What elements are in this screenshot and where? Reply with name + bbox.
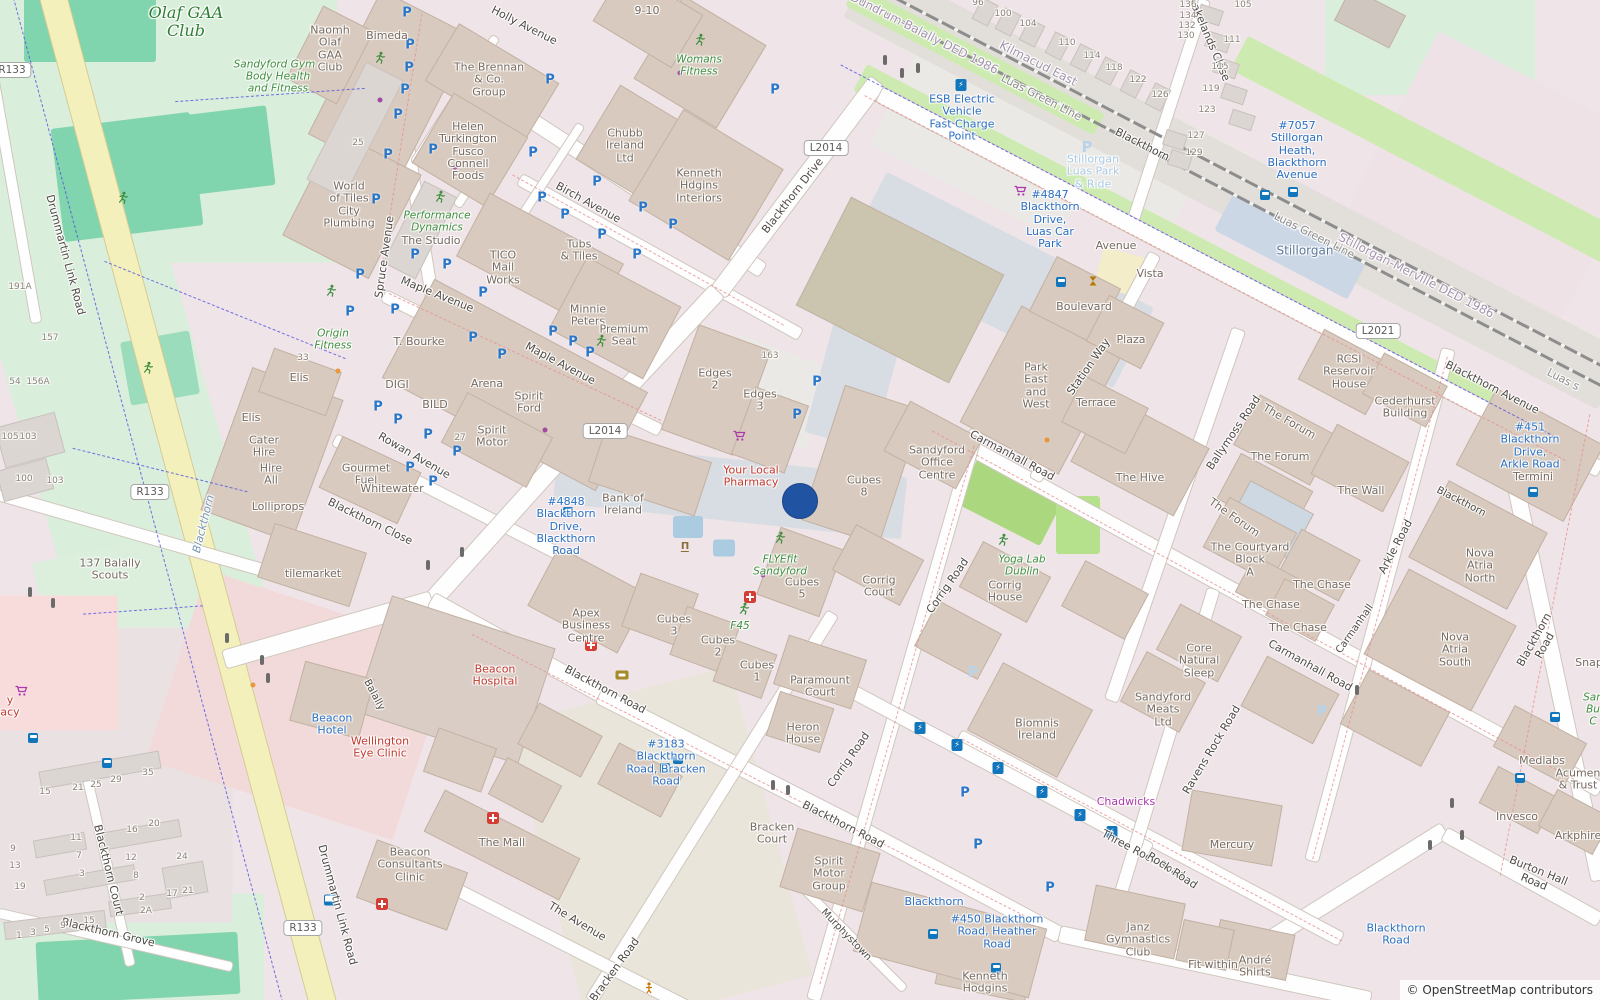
map-label: Terrace — [1076, 397, 1116, 409]
museum-icon: Π — [681, 542, 689, 552]
bus-icon — [1515, 773, 1525, 783]
p-icon: P — [545, 73, 555, 88]
map-label: #4848 Blackthorn Drive, Blackthorn Road — [536, 496, 595, 558]
p-icon: P — [528, 146, 538, 161]
map-label: Whitewater — [360, 483, 423, 495]
map-label: Fit within — [1188, 959, 1238, 971]
map-label: Arena — [471, 378, 503, 390]
map-label: Arkphire — [1555, 830, 1600, 842]
map-label: Kenneth Hdgins Interiors — [676, 168, 722, 205]
map-label: The Studio — [402, 235, 461, 247]
p-icon: P — [423, 428, 433, 443]
map-label: Chadwicks — [1097, 796, 1156, 808]
route-badge: L2014 — [583, 423, 628, 439]
map-label: Cubes 2 — [701, 635, 735, 660]
map-label: Mercury — [1210, 839, 1255, 851]
bus-icon — [102, 758, 112, 768]
bus-icon — [1056, 277, 1066, 287]
p-icon: P — [400, 83, 410, 98]
bus-icon — [1260, 190, 1270, 200]
map-label: Helen Turkington Fusco Connell Foods — [439, 121, 497, 183]
runner-icon — [739, 603, 749, 616]
p-icon: P — [497, 348, 507, 363]
map-label: 9-10 — [635, 5, 660, 17]
map-label: Corrig Court — [862, 575, 895, 600]
map-label: Cubes 3 — [657, 614, 691, 639]
map-label: Cubes 8 — [847, 475, 881, 500]
p-icon: P — [478, 286, 488, 301]
map-label: 33 — [297, 353, 308, 363]
cart-icon — [733, 431, 746, 442]
map-label: 115 — [1211, 62, 1228, 72]
map-label: The Chase — [1242, 599, 1300, 611]
map-label: 9 — [10, 844, 16, 854]
p-icon: P — [1045, 881, 1055, 896]
osm-attribution[interactable]: © OpenStreetMap contributors — [1400, 980, 1600, 1000]
runner-icon — [998, 534, 1008, 547]
map-label: Blackthorn Road — [1366, 923, 1425, 948]
map-label: 136 — [1179, 0, 1196, 10]
map-label: 105 — [1, 432, 18, 442]
map-label: Naomh Olaf GAA Club — [310, 24, 349, 73]
p-icon: P — [812, 375, 822, 390]
map-label: 105 — [1234, 0, 1251, 10]
map-label: Core Natural Sleep — [1179, 643, 1220, 680]
map-label: Your Local Pharmacy — [723, 465, 779, 490]
map-area — [713, 540, 735, 557]
runner-icon — [435, 191, 445, 204]
map-label: Stillorgan Luas Park & Ride — [1067, 154, 1120, 191]
p-icon: P — [597, 228, 607, 243]
p-icon: P — [442, 258, 452, 273]
map-label: Olaf GAA Club — [149, 4, 224, 40]
map-label: Spirit Motor Group — [812, 856, 846, 893]
location-marker[interactable] — [782, 483, 818, 519]
map-label: 12 — [125, 853, 136, 863]
map-label: 21 — [72, 783, 83, 793]
route-badge: R133 — [283, 920, 322, 936]
route-badge: L2014 — [804, 140, 849, 156]
map-label: Spirit Motor — [476, 425, 508, 450]
map-label: 103 — [19, 432, 36, 442]
p-icon: P — [592, 175, 602, 190]
tl-icon — [1355, 685, 1359, 695]
map-label: 134 — [1179, 11, 1196, 21]
map-label: Janz Gymnastics Club — [1106, 922, 1170, 959]
map-label: Origin Fitness — [314, 328, 351, 352]
map-label: World of Tiles City Plumbing — [323, 180, 374, 229]
map-label: 103 — [46, 476, 63, 486]
p-icon: P — [452, 445, 462, 460]
p-icon: P — [373, 400, 383, 415]
map-label: Edges 2 — [698, 368, 731, 393]
map-label: #7057 Stillorgan Heath, Blackthorn Avenu… — [1267, 120, 1326, 182]
tl-icon — [460, 547, 464, 557]
map-label: tilemarket — [285, 568, 341, 580]
ev-icon: ⚡ — [993, 762, 1004, 774]
map-label: 110 — [1058, 38, 1075, 48]
tl-icon — [1450, 798, 1454, 808]
map-area — [184, 105, 275, 194]
p-icon: P — [393, 108, 403, 123]
map-label: 129 — [1185, 148, 1202, 158]
ev-icon: ⚡ — [1037, 786, 1048, 798]
ev-icon: ⚡ — [1075, 809, 1086, 821]
tl-icon — [225, 633, 229, 643]
p-icon: P — [404, 61, 414, 76]
map-label: Spirit Ford — [515, 391, 544, 416]
map-label: Wellington Eye Clinic — [351, 736, 409, 761]
pp-icon: P — [968, 663, 979, 681]
map-label: The Mall — [479, 837, 525, 849]
map-label: 132 — [1178, 21, 1195, 31]
map-label: Sandyford Gym - Body Health and Fitness — [234, 59, 323, 94]
tl-icon — [900, 68, 904, 78]
map-label: Plaza — [1117, 334, 1146, 346]
map-label: 9 — [60, 921, 66, 931]
ev-icon: ⚡ — [952, 739, 963, 751]
p-icon: P — [960, 786, 970, 801]
p-icon: P — [537, 191, 547, 206]
map-label: 54 — [9, 377, 20, 387]
map-label: The Hive — [1116, 472, 1165, 484]
map-label: 123 — [1198, 105, 1215, 115]
map-label: 191A — [8, 282, 31, 292]
ev-icon: ⚡ — [956, 79, 967, 91]
map-label: 2 — [139, 893, 145, 903]
map-label: Sandyford Meats Ltd — [1135, 692, 1191, 729]
map-label: Bank of Ireland — [602, 493, 644, 518]
tl-icon — [266, 673, 270, 683]
map-label: Corrig House — [988, 580, 1022, 605]
ev-icon: ⚡ — [915, 722, 926, 734]
tl-icon — [916, 63, 920, 73]
hourglass-icon — [1089, 276, 1098, 287]
map-label: F45 — [730, 621, 749, 633]
map-label: Premium Seat — [600, 324, 649, 349]
map-label: Medlabs — [1519, 755, 1565, 767]
p-icon: P — [355, 268, 365, 283]
map-label: Yoga Lab Dublin — [998, 554, 1045, 578]
p-icon: P — [668, 218, 678, 233]
bus-icon — [28, 733, 38, 743]
map-label: San Bu C — [1583, 692, 1600, 727]
runner-icon — [375, 52, 385, 65]
map-label: 20 — [148, 819, 159, 829]
map-label: 126 — [1151, 90, 1168, 100]
map-label: 96 — [972, 0, 983, 8]
map-label: The Brennan & Co. Group — [454, 62, 524, 99]
map-label: The Forum — [1251, 451, 1310, 463]
map-label: RCSI Reservoir House — [1323, 354, 1375, 391]
map-label: 100 — [994, 9, 1011, 19]
route-badge: R133 — [0, 62, 32, 78]
map-label: Chubb Ireland Ltd — [606, 128, 644, 165]
map-label: T. Bourke — [394, 336, 445, 348]
tl-icon — [771, 780, 775, 790]
map-label: 111 — [1223, 35, 1240, 45]
map-label: Snap — [1575, 657, 1600, 669]
map-label: Cubes 5 — [785, 577, 819, 602]
cross-icon — [744, 591, 756, 603]
p-icon: P — [548, 325, 558, 340]
map-label: Cater Hire — [249, 435, 279, 460]
map-label: Elis — [242, 412, 261, 424]
runner-icon — [775, 532, 785, 545]
building — [1220, 83, 1248, 106]
map-label: Termini — [1513, 471, 1553, 483]
map-label: Heron House — [786, 722, 820, 747]
map-label: 21 — [182, 886, 193, 896]
map-label: Kenneth Hodgins — [962, 971, 1007, 996]
route-badge: L2021 — [1356, 323, 1401, 339]
map-label: Avenue — [1096, 240, 1137, 252]
tl-icon — [1428, 840, 1432, 850]
map-area — [673, 516, 703, 538]
map-label: 100 — [15, 474, 32, 484]
dot-o-icon — [251, 683, 256, 688]
p-icon: P — [345, 305, 355, 320]
map-label: Apex Business Centre — [562, 608, 611, 645]
tl-icon — [28, 587, 32, 597]
map-label: Sandyford Office Centre — [909, 445, 965, 482]
bus-icon — [928, 929, 938, 939]
map-label: The Chase — [1269, 622, 1327, 634]
bus-icon — [1288, 187, 1298, 197]
map-label: Beacon Consultants Clinic — [377, 847, 442, 884]
map-label: 5 — [44, 925, 50, 935]
map-label: 24 — [176, 852, 187, 862]
map-label: 19 — [14, 882, 25, 892]
p-icon: P — [410, 248, 420, 263]
map-label: Acumen & Trust — [1556, 768, 1600, 793]
map-label: André Shirts — [1239, 955, 1272, 980]
map-label: Beacon Hospital — [473, 664, 518, 689]
runner-icon — [118, 192, 128, 205]
map-label: Vista — [1136, 268, 1163, 280]
map-label: Cubes 1 — [740, 660, 774, 685]
map-label: Elis — [290, 372, 309, 384]
map-label: Stillorgan — [1277, 244, 1334, 257]
cross-icon — [376, 898, 388, 910]
map-label: Corrig Road — [825, 730, 872, 790]
map-label: 15 — [39, 787, 50, 797]
map-label: 3 — [30, 928, 36, 938]
map-label: Bracken Court — [750, 822, 795, 847]
map-label: 35 — [142, 768, 153, 778]
map-label: Biomnis Ireland — [1015, 718, 1059, 743]
map-label: 104 — [1019, 19, 1036, 29]
map-label: 118 — [1105, 63, 1122, 73]
tl-icon — [51, 598, 55, 608]
map-label: 1 — [16, 931, 22, 941]
map-label: y acy — [0, 695, 19, 720]
map-label: Hire All — [260, 463, 282, 488]
map-label: 15 — [83, 916, 94, 926]
p-icon: P — [585, 346, 595, 361]
bus-icon — [1528, 487, 1538, 497]
p-icon: P — [770, 83, 780, 98]
map-label: Womans Fitness — [676, 54, 722, 78]
map-label: The Chase — [1293, 579, 1351, 591]
tl-icon — [260, 655, 264, 665]
map-label: Blackthorn — [904, 896, 963, 908]
map-label: 114 — [1083, 51, 1100, 61]
runner-icon — [326, 285, 336, 298]
p-icon: P — [568, 335, 578, 350]
map-label: ESB Electric Vehicle Fast Charge Point — [929, 93, 995, 142]
p-icon: P — [792, 408, 802, 423]
map-label: Tubs & Tiles — [560, 239, 597, 264]
p-icon: P — [638, 201, 648, 216]
p-icon: P — [402, 6, 412, 21]
map-label: Edges 3 — [743, 389, 776, 414]
map-label: #4847 Blackthorn Drive, Luas Car Park — [1020, 189, 1079, 251]
map-label: FLYEfit Sandyford — [753, 554, 807, 578]
map-label: Cederhurst Building — [1374, 396, 1435, 421]
p-icon: P — [973, 838, 983, 853]
person-icon — [645, 982, 654, 994]
bank-icon — [616, 671, 629, 680]
tl-icon — [426, 560, 430, 570]
map-label: 127 — [1187, 131, 1204, 141]
map-label: 29 — [110, 775, 121, 785]
map-label: 8 — [133, 871, 139, 881]
tl-icon — [1460, 830, 1464, 840]
building — [1228, 109, 1256, 132]
map-label: Beacon Hotel — [312, 713, 353, 738]
p-icon: P — [383, 148, 393, 163]
map-label: 7 — [76, 851, 82, 861]
tl-icon — [786, 785, 790, 795]
map-label: 27 — [454, 433, 465, 443]
map-label: 157 — [41, 333, 58, 343]
map-label: 25 — [90, 780, 101, 790]
map-label: 137 Balally Scouts — [79, 558, 140, 583]
dot-p-icon — [378, 98, 383, 103]
map-label: #3183 Blackthorn Road, Bracken Road — [626, 738, 705, 787]
p-icon: P — [560, 208, 570, 223]
dot-o-icon — [336, 369, 341, 374]
map-label: Nova Atria North — [1465, 548, 1496, 585]
map-label: Performance Dynamics — [403, 210, 470, 234]
map-canvas[interactable]: © OpenStreetMap contributors PPPPPPPPPPP… — [0, 0, 1600, 1000]
map-label: The Wall — [1338, 485, 1385, 497]
map-label: 3 — [79, 869, 85, 879]
p-icon: P — [390, 303, 400, 318]
map-label: Boulevard — [1056, 301, 1112, 313]
map-label: 13 — [9, 861, 20, 871]
bus-icon — [1550, 712, 1560, 722]
route-badge: R133 — [130, 484, 169, 500]
map-label: Paramount Court — [790, 675, 850, 700]
p-icon: P — [428, 143, 438, 158]
map-label: 17 — [166, 889, 177, 899]
map-label: 11 — [70, 833, 81, 843]
map-label: #451 Blackthorn Drive, Arkle Road — [1495, 421, 1565, 470]
runner-icon — [695, 34, 705, 47]
map-label: 156A — [26, 377, 49, 387]
dot-o-icon — [1045, 438, 1050, 443]
map-label: 130 — [1177, 31, 1194, 41]
map-label: 16 — [126, 825, 137, 835]
p-icon: P — [632, 248, 642, 263]
map-label: 2A — [140, 906, 152, 916]
runner-icon — [143, 362, 153, 375]
p-icon: P — [468, 331, 478, 346]
map-label: Bimeda — [366, 30, 408, 42]
map-label: The Courtyard Block A — [1211, 542, 1290, 579]
map-label: TICO Mail Works — [486, 250, 520, 287]
p-icon: P — [393, 413, 403, 428]
map-label: DIGI — [385, 379, 408, 391]
map-label: Invesco — [1496, 811, 1538, 823]
map-label: BILD — [422, 399, 447, 411]
tl-icon — [883, 55, 887, 65]
map-label: #450 Blackthorn Road, Heather Road — [951, 914, 1044, 951]
map-label: Lolliprops — [252, 501, 305, 513]
p-icon: P — [428, 475, 438, 490]
dot-p-icon — [543, 428, 548, 433]
map-label: Holly Avenue — [489, 4, 559, 48]
map-label: Park East and West — [1022, 361, 1049, 410]
map-label: 119 — [1202, 84, 1219, 94]
pp-icon: P — [1317, 702, 1328, 720]
map-label: 25 — [352, 138, 363, 148]
cross-icon — [487, 812, 499, 824]
map-label: Nova Atria South — [1439, 632, 1471, 669]
map-label: 122 — [1129, 75, 1146, 85]
map-label: 163 — [761, 351, 778, 361]
